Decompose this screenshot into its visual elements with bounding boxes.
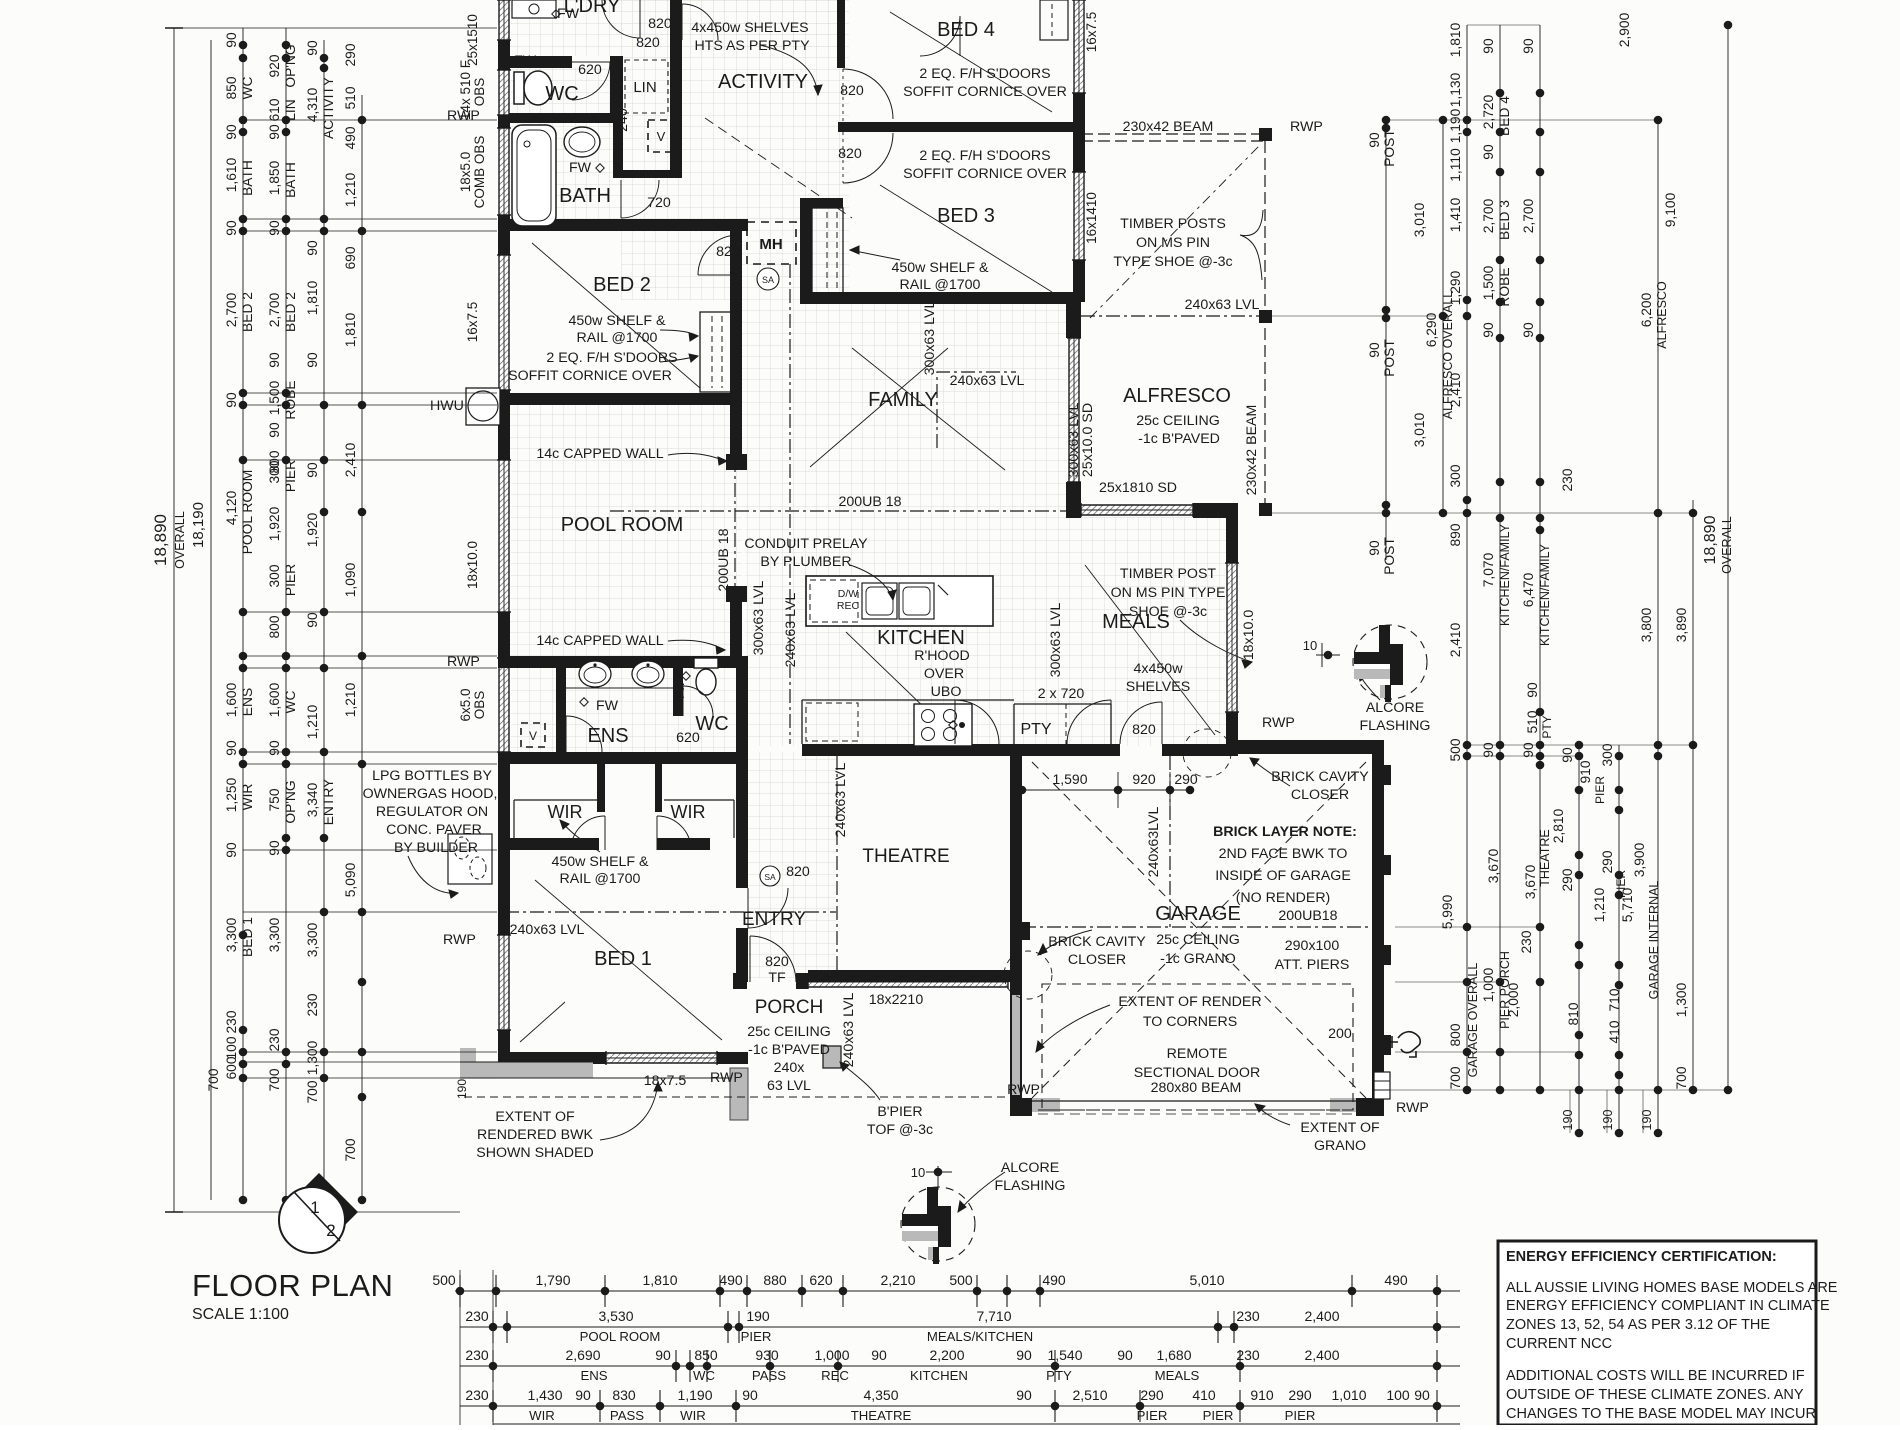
svg-text:UBO: UBO [931,684,962,700]
svg-text:200: 200 [1328,1026,1352,1042]
svg-text:290: 290 [343,43,358,66]
svg-text:BED 2: BED 2 [593,274,651,296]
svg-text:63 LVL: 63 LVL [767,1078,811,1094]
svg-text:930: 930 [755,1347,779,1363]
svg-text:1,590: 1,590 [1052,771,1087,787]
svg-text:90: 90 [267,352,282,368]
svg-text:830: 830 [612,1387,636,1403]
svg-text:1,500: 1,500 [1481,265,1496,300]
svg-text:4,120: 4,120 [224,490,239,525]
svg-text:720: 720 [647,195,671,211]
svg-text:1,210: 1,210 [343,172,358,207]
svg-text:90: 90 [1414,1387,1430,1403]
svg-text:1,680: 1,680 [1156,1347,1191,1363]
svg-text:90: 90 [1481,38,1496,54]
svg-text:200UB18: 200UB18 [1278,908,1337,924]
svg-text:ROBE: ROBE [283,380,298,419]
svg-text:ON MS PIN TYPE: ON MS PIN TYPE [1111,585,1226,601]
svg-text:90: 90 [1481,322,1496,338]
svg-text:300: 300 [267,460,282,483]
svg-text:INSIDE OF GARAGE: INSIDE OF GARAGE [1215,868,1351,884]
svg-text:1,290: 1,290 [1448,270,1463,305]
svg-text:510: 510 [1525,710,1540,733]
svg-text:ALL AUSSIE LIVING HOMES BASE M: ALL AUSSIE LIVING HOMES BASE MODELS ARE [1506,1280,1838,1296]
svg-text:1,600: 1,600 [224,682,239,717]
svg-text:90: 90 [1521,322,1536,338]
svg-text:BATH: BATH [240,160,255,196]
svg-text:710: 710 [1607,988,1622,1011]
svg-text:2,700: 2,700 [1521,198,1536,233]
svg-text:90: 90 [1016,1387,1032,1403]
svg-text:R'HOOD: R'HOOD [914,648,970,664]
svg-text:10: 10 [911,1165,925,1180]
svg-text:2,410: 2,410 [1448,372,1463,407]
svg-text:3,010: 3,010 [1412,202,1427,237]
svg-text:190: 190 [1601,1110,1615,1131]
svg-text:25x1510: 25x1510 [465,14,480,66]
svg-text:230: 230 [1236,1308,1260,1324]
svg-text:5,990: 5,990 [1440,894,1455,929]
svg-text:SA: SA [764,872,776,882]
svg-text:PIER: PIER [283,564,298,596]
svg-text:ENTRY: ENTRY [321,779,336,826]
svg-text:490: 490 [1042,1272,1066,1288]
svg-text:240x: 240x [774,1060,805,1076]
svg-text:25c CEILING: 25c CEILING [1156,932,1240,948]
svg-text:1,430: 1,430 [527,1387,562,1403]
svg-text:1,130: 1,130 [1448,72,1463,107]
svg-text:2,410: 2,410 [1448,622,1463,657]
svg-text:6,470: 6,470 [1521,572,1536,607]
svg-text:490: 490 [719,1272,743,1288]
svg-text:V: V [657,129,666,144]
svg-text:2,210: 2,210 [880,1272,915,1288]
svg-text:2ND FACE BWK TO: 2ND FACE BWK TO [1219,846,1348,862]
svg-text:ZONES 13, 52, 54 AS PER 3.12 O: ZONES 13, 52, 54 AS PER 3.12 OF THE [1506,1317,1770,1333]
svg-text:240x63LVL: 240x63LVL [1146,807,1162,878]
svg-text:OWNERGAS HOOD,: OWNERGAS HOOD, [363,786,498,802]
svg-text:14x 510 F: 14x 510 F [458,60,473,120]
svg-text:90: 90 [267,220,282,236]
svg-text:WIR: WIR [548,802,583,822]
svg-text:2,720: 2,720 [1481,94,1496,129]
svg-text:2 EQ. F/H S'DOORS: 2 EQ. F/H S'DOORS [919,148,1050,164]
svg-text:OVER: OVER [924,666,964,682]
svg-text:CLOSER: CLOSER [1068,952,1126,968]
svg-text:4x450w SHELVES: 4x450w SHELVES [691,20,808,36]
svg-text:THEATRE: THEATRE [1538,829,1552,886]
svg-text:90: 90 [267,840,282,856]
svg-text:620: 620 [676,730,700,746]
svg-text:1,920: 1,920 [305,512,320,547]
svg-text:BATH: BATH [559,185,611,207]
svg-text:10: 10 [1303,638,1317,653]
svg-text:700: 700 [1674,1066,1689,1089]
svg-text:5,710: 5,710 [1620,887,1635,922]
svg-text:290: 290 [1140,1387,1164,1403]
svg-text:ALCORE: ALCORE [1001,1160,1059,1176]
svg-text:TO CORNERS: TO CORNERS [1143,1014,1237,1030]
svg-text:1,210: 1,210 [1592,887,1607,922]
svg-text:3,890: 3,890 [1674,607,1689,642]
svg-text:280x80 BEAM: 280x80 BEAM [1151,1080,1242,1096]
svg-text:1,210: 1,210 [305,704,320,739]
svg-text:BRICK CAVITY: BRICK CAVITY [1271,769,1369,785]
svg-text:6,200: 6,200 [1639,292,1654,327]
svg-text:PTY: PTY [1020,721,1051,738]
svg-text:230x42 BEAM: 230x42 BEAM [1244,405,1260,496]
svg-text:OBS: OBS [472,78,487,107]
svg-text:GARAGE OVERALL: GARAGE OVERALL [1466,963,1480,1078]
svg-text:230: 230 [1236,1347,1260,1363]
svg-text:PIER: PIER [1203,1408,1234,1423]
svg-text:-1c B'PAVED: -1c B'PAVED [1138,431,1220,447]
svg-text:2,690: 2,690 [565,1347,600,1363]
svg-text:ENS: ENS [240,688,255,716]
svg-text:890: 890 [1448,523,1463,546]
svg-text:PORCH: PORCH [755,997,824,1018]
svg-text:BATH: BATH [283,162,298,198]
svg-text:POOL ROOM: POOL ROOM [580,1329,661,1344]
svg-text:HWU: HWU [430,398,464,414]
svg-text:SOFFIT CORNICE OVER: SOFFIT CORNICE OVER [903,166,1067,182]
svg-text:3,340: 3,340 [305,782,320,817]
svg-text:BED 4: BED 4 [1497,96,1512,136]
svg-text:BY PLUMBER: BY PLUMBER [760,554,851,570]
svg-text:100: 100 [1386,1387,1410,1403]
svg-text:3,800: 3,800 [1639,607,1654,642]
svg-text:PIER: PIER [1285,1408,1316,1423]
svg-text:BED 3: BED 3 [937,205,995,227]
svg-text:ENERGY EFFICIENCY COMPLIANT IN: ENERGY EFFICIENCY COMPLIANT IN CLIMATE [1506,1298,1830,1314]
svg-text:300x63 LVL: 300x63 LVL [922,301,938,376]
svg-text:CLOSER: CLOSER [1291,787,1349,803]
svg-text:GARAGE: GARAGE [1155,903,1241,925]
svg-text:230: 230 [1519,930,1534,953]
svg-text:ACTIVITY: ACTIVITY [321,77,336,139]
svg-text:MEALS: MEALS [1155,1368,1200,1383]
svg-text:1,540: 1,540 [1047,1347,1082,1363]
svg-text:190: 190 [746,1308,770,1324]
svg-text:190: 190 [1561,1110,1575,1131]
svg-text:OVERALL: OVERALL [173,511,187,569]
svg-text:90: 90 [575,1387,591,1403]
svg-text:PIER: PIER [741,1329,772,1344]
svg-text:18,890: 18,890 [1702,515,1719,564]
svg-text:FW: FW [675,681,687,699]
svg-text:KITCHEN: KITCHEN [877,627,965,649]
svg-text:290: 290 [1560,868,1575,891]
svg-text:7,070: 7,070 [1481,552,1496,587]
svg-text:18x10.0: 18x10.0 [1241,610,1257,661]
svg-text:D/W: D/W [838,588,859,600]
svg-text:450w SHELF &: 450w SHELF & [569,313,667,329]
svg-text:BED 3: BED 3 [1497,200,1512,240]
svg-text:2,900: 2,900 [1617,12,1632,47]
svg-text:THEATRE: THEATRE [862,846,949,867]
svg-text:9,100: 9,100 [1663,192,1678,227]
svg-text:3,900: 3,900 [1632,842,1647,877]
svg-text:3,670: 3,670 [1486,848,1501,883]
svg-text:240x63 LVL: 240x63 LVL [783,593,799,668]
svg-text:90: 90 [1521,38,1536,54]
svg-text:WIR: WIR [680,1408,706,1423]
svg-text:PTY: PTY [1046,1368,1072,1383]
svg-text:V: V [529,729,537,743]
svg-text:TYPE SHOE @-3c: TYPE SHOE @-3c [1113,254,1232,270]
svg-text:RWP: RWP [1396,1100,1429,1116]
svg-text:POOL ROOM: POOL ROOM [240,470,255,555]
svg-text:REC: REC [821,1368,849,1383]
svg-text:POST: POST [1382,537,1397,575]
svg-text:90: 90 [1481,144,1496,160]
svg-text:-1c GRANO: -1c GRANO [1160,951,1236,967]
svg-text:200UB 18: 200UB 18 [716,528,732,591]
svg-text:16x7.5: 16x7.5 [465,302,480,343]
svg-text:920: 920 [267,54,282,77]
svg-text:1,300: 1,300 [1674,982,1689,1017]
svg-text:820: 820 [716,244,740,260]
svg-text:5,090: 5,090 [343,862,358,897]
svg-text:18x7.5: 18x7.5 [644,1073,687,1089]
svg-text:820: 820 [765,954,789,970]
svg-text:230x42 BEAM: 230x42 BEAM [1123,119,1214,135]
svg-text:700: 700 [267,1068,282,1091]
svg-text:ENERGY EFFICIENCY CERTIFICATIO: ENERGY EFFICIENCY CERTIFICATION: [1506,1249,1777,1265]
svg-text:BY BUILDER: BY BUILDER [394,840,478,856]
svg-text:230: 230 [1560,468,1575,491]
svg-text:90: 90 [305,40,320,56]
svg-text:90: 90 [305,462,320,478]
svg-text:1,190: 1,190 [1448,108,1463,143]
svg-text:1,610: 1,610 [224,157,239,192]
svg-text:850: 850 [694,1347,718,1363]
svg-text:FW: FW [514,53,537,69]
svg-text:2: 2 [326,1221,335,1240]
svg-text:5,010: 5,010 [1189,1272,1224,1288]
svg-text:GARAGE INTERNAL: GARAGE INTERNAL [1647,881,1661,1000]
svg-text:PASS: PASS [752,1368,786,1383]
svg-text:COMB OBS: COMB OBS [472,136,487,209]
svg-text:EXTENT OF: EXTENT OF [1300,1120,1380,1136]
svg-text:EXTENT OF: EXTENT OF [495,1109,575,1125]
svg-text:ROBE: ROBE [1497,267,1512,306]
svg-text:2,400: 2,400 [1304,1347,1339,1363]
svg-text:ADDITIONAL COSTS WILL BE INCUR: ADDITIONAL COSTS WILL BE INCURRED IF [1506,1368,1805,1384]
svg-text:2,200: 2,200 [929,1347,964,1363]
svg-text:TF: TF [768,970,786,986]
svg-text:FW: FW [596,698,619,714]
svg-text:PIER: PIER [1593,776,1607,804]
svg-text:ALFRESCO: ALFRESCO [1655,281,1669,349]
svg-text:THEATRE: THEATRE [851,1408,912,1423]
svg-text:BRICK CAVITY: BRICK CAVITY [1048,934,1146,950]
svg-text:WIR: WIR [671,802,706,822]
svg-text:820: 820 [648,16,672,32]
svg-text:HTS AS PER PTY: HTS AS PER PTY [694,38,810,54]
svg-text:1,810: 1,810 [1448,22,1463,57]
svg-text:90: 90 [224,220,239,236]
svg-text:KITCHEN/FAMILY: KITCHEN/FAMILY [1538,543,1552,646]
svg-text:820: 820 [838,146,862,162]
svg-text:490: 490 [1384,1272,1408,1288]
svg-text:90: 90 [267,124,282,140]
svg-text:CONDUIT PRELAY: CONDUIT PRELAY [744,536,868,552]
svg-text:WC: WC [693,1368,715,1383]
svg-text:WC: WC [240,76,255,99]
svg-text:820: 820 [840,83,864,99]
svg-text:ALFRESCO: ALFRESCO [1123,385,1231,407]
svg-text:300: 300 [267,564,282,587]
svg-text:BRICK LAYER NOTE:: BRICK LAYER NOTE: [1213,824,1357,840]
svg-text:800: 800 [1448,1023,1463,1046]
svg-text:240x63 LVL: 240x63 LVL [950,373,1025,389]
svg-text:BED 2: BED 2 [283,292,298,332]
svg-text:POST: POST [1382,129,1397,167]
svg-text:1,210: 1,210 [343,682,358,717]
svg-text:RAIL @1700: RAIL @1700 [577,330,658,346]
svg-text:1,810: 1,810 [305,280,320,315]
svg-text:FW: FW [557,6,580,22]
svg-text:620: 620 [578,62,602,78]
svg-text:230: 230 [224,1010,239,1033]
svg-text:REGULATOR ON: REGULATOR ON [376,804,488,820]
svg-text:1,790: 1,790 [535,1272,570,1288]
svg-text:500: 500 [432,1272,456,1288]
svg-text:25c CEILING: 25c CEILING [1136,413,1220,429]
svg-text:90: 90 [224,392,239,408]
svg-text:750: 750 [267,788,282,811]
svg-text:ON MS PIN: ON MS PIN [1136,235,1210,251]
svg-text:920: 920 [1132,771,1156,787]
svg-text:820: 820 [786,864,810,880]
svg-text:WC: WC [695,713,728,735]
svg-text:EXTENT OF RENDER: EXTENT OF RENDER [1118,994,1261,1010]
svg-text:300x63 LVL: 300x63 LVL [751,581,767,656]
svg-text:90: 90 [1367,132,1382,148]
svg-text:16x7.5: 16x7.5 [1084,12,1099,53]
svg-text:200UB 18: 200UB 18 [838,494,901,510]
svg-text:230: 230 [465,1387,489,1403]
svg-text:1,110: 1,110 [1448,148,1463,182]
svg-text:ENS: ENS [587,725,628,747]
svg-text:REC: REC [837,600,860,612]
svg-text:RWP: RWP [1007,1082,1040,1098]
svg-text:OUTSIDE OF THESE CLIMATE ZONES: OUTSIDE OF THESE CLIMATE ZONES. ANY [1506,1387,1804,1403]
svg-text:BED 1: BED 1 [240,917,255,957]
svg-text:820: 820 [1132,722,1156,738]
svg-text:TOF @-3c: TOF @-3c [867,1122,933,1138]
svg-text:WC: WC [283,690,298,713]
svg-text:90: 90 [1117,1347,1133,1363]
svg-text:OVERALL: OVERALL [1720,516,1734,574]
svg-text:ENS: ENS [580,1368,607,1383]
svg-text:290x100: 290x100 [1285,938,1340,954]
svg-text:2 x 720: 2 x 720 [1038,686,1085,702]
svg-text:190: 190 [455,1079,469,1099]
svg-text:850: 850 [224,76,239,99]
svg-text:RWP: RWP [710,1070,743,1086]
svg-text:90: 90 [742,1387,758,1403]
svg-text:1,810: 1,810 [642,1272,677,1288]
svg-text:RWP: RWP [443,932,476,948]
svg-text:3,300: 3,300 [224,917,239,952]
svg-text:CONC. PAVER: CONC. PAVER [386,822,482,838]
svg-text:SHOWN SHADED: SHOWN SHADED [476,1145,593,1161]
svg-text:1,600: 1,600 [267,682,282,717]
svg-text:PIER: PIER [283,460,298,492]
svg-text:6,290: 6,290 [1424,312,1439,347]
svg-text:2 EQ. F/H S'DOORS: 2 EQ. F/H S'DOORS [919,66,1050,82]
svg-text:RENDERED BWK: RENDERED BWK [477,1127,593,1143]
svg-text:6x5.0: 6x5.0 [458,688,473,721]
svg-text:LIN: LIN [283,99,298,120]
svg-text:SHOE @-3c: SHOE @-3c [1129,604,1207,620]
svg-text:90: 90 [224,124,239,140]
svg-text:230: 230 [305,993,320,1016]
svg-text:240x63 LVL: 240x63 LVL [833,763,849,838]
svg-text:WIR: WIR [240,784,255,811]
svg-text:25c CEILING: 25c CEILING [747,1024,831,1040]
svg-text:18x5.0: 18x5.0 [458,152,473,193]
svg-text:OP'NG: OP'NG [283,780,298,823]
svg-text:SA: SA [762,275,774,285]
svg-text:610: 610 [267,98,282,121]
svg-text:450w SHELF &: 450w SHELF & [892,260,990,276]
svg-text:KITCHEN/FAMILY: KITCHEN/FAMILY [1498,523,1512,626]
svg-text:500: 500 [1448,738,1463,761]
svg-text:RWP: RWP [1262,715,1295,731]
svg-text:SOFFIT CORNICE OVER: SOFFIT CORNICE OVER [508,368,672,384]
svg-text:3,670: 3,670 [1523,864,1538,899]
svg-text:3,010: 3,010 [1412,412,1427,447]
svg-text:1,250: 1,250 [224,777,239,812]
svg-text:ACTIVITY: ACTIVITY [718,71,808,93]
svg-text:910: 910 [1578,760,1593,783]
svg-text:16x1410: 16x1410 [1084,192,1099,244]
svg-text:CHANGES TO THE BASE MODEL MAY: CHANGES TO THE BASE MODEL MAY INCUR [1506,1406,1816,1422]
svg-text:WIR: WIR [529,1408,555,1423]
svg-text:SCALE 1:100: SCALE 1:100 [192,1306,289,1323]
svg-text:290: 290 [1288,1387,1312,1403]
svg-text:240x63 LVL: 240x63 LVL [841,993,857,1068]
svg-text:240x63 LVL: 240x63 LVL [510,922,585,938]
svg-text:7,710: 7,710 [976,1308,1011,1324]
svg-text:240x63 LVL: 240x63 LVL [1185,297,1260,313]
svg-text:OP'NG: OP'NG [283,44,298,87]
svg-text:90: 90 [224,32,239,48]
svg-text:1,190: 1,190 [677,1387,712,1403]
svg-text:90: 90 [1525,682,1540,698]
svg-text:TIMBER POSTS: TIMBER POSTS [1120,216,1226,232]
svg-text:90: 90 [1016,1347,1032,1363]
svg-text:600: 600 [224,1056,239,1079]
svg-text:BED 1: BED 1 [594,948,652,970]
svg-text:300x63 LVL: 300x63 LVL [1048,603,1064,678]
svg-text:TIMBER POST: TIMBER POST [1120,566,1217,582]
svg-text:1,410: 1,410 [1448,197,1463,232]
svg-text:25x10.0 SD: 25x10.0 SD [1080,403,1096,477]
svg-text:18x2210: 18x2210 [869,992,924,1008]
svg-text:90: 90 [871,1347,887,1363]
svg-text:800: 800 [267,615,282,638]
svg-text:RWP: RWP [1290,119,1323,135]
svg-text:880: 880 [763,1272,787,1288]
svg-text:B'PIER: B'PIER [877,1104,922,1120]
svg-text:18,190: 18,190 [190,502,207,548]
svg-text:RAIL @1700: RAIL @1700 [560,871,641,887]
svg-text:90: 90 [305,240,320,256]
